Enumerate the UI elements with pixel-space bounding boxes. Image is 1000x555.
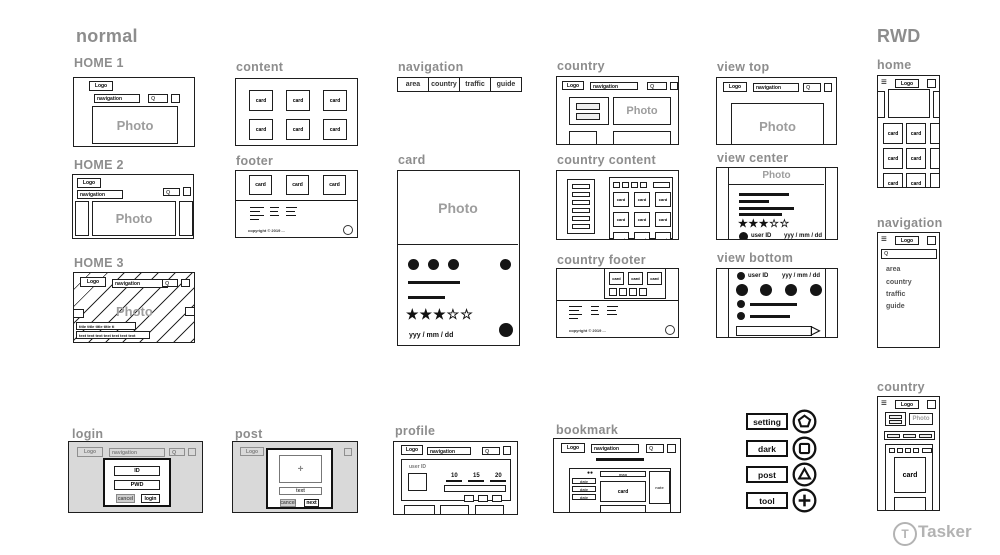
navigation-bar[interactable]: navigation xyxy=(427,447,471,455)
avatar-dot xyxy=(408,259,419,270)
footer-link-line xyxy=(286,207,297,208)
id-field[interactable]: ID xyxy=(114,466,160,476)
rating-stars[interactable]: ★★★☆☆ xyxy=(406,307,474,321)
logo-box: Logo xyxy=(77,178,101,188)
label-home2: HOME 2 xyxy=(74,158,124,172)
date-box[interactable]: date xyxy=(572,486,596,492)
logo-box: Logo xyxy=(401,445,423,455)
footer-link-line xyxy=(250,219,259,220)
list-row xyxy=(889,415,902,419)
title-rwd: RWD xyxy=(877,26,921,47)
action-dot[interactable] xyxy=(500,259,511,270)
post-modal: + text cancel next xyxy=(266,448,333,509)
related-panel: card card card xyxy=(604,268,666,299)
date-box[interactable]: date xyxy=(572,478,596,484)
label-bookmark: bookmark xyxy=(556,423,618,437)
date-box[interactable]: date xyxy=(572,494,596,500)
nav-item-country[interactable]: country xyxy=(429,78,460,91)
comment-input[interactable] xyxy=(736,326,812,336)
footer-link-line xyxy=(569,310,579,311)
label-view-center: view center xyxy=(717,151,788,165)
pager-box[interactable] xyxy=(629,288,637,296)
search-input[interactable]: Q xyxy=(482,447,500,455)
search-button[interactable] xyxy=(927,236,936,245)
card-partial[interactable] xyxy=(930,123,940,144)
left-sidebar xyxy=(75,201,89,236)
footer-link-line xyxy=(270,211,278,212)
label-view-top: view top xyxy=(717,60,769,74)
avatar-dot xyxy=(737,312,745,320)
segment[interactable] xyxy=(887,434,900,438)
nav-item-area[interactable]: area xyxy=(398,78,429,91)
reaction-dot[interactable] xyxy=(785,284,797,296)
photo-placeholder: Photo xyxy=(92,201,176,236)
search-input[interactable]: Q xyxy=(148,94,168,103)
search-button[interactable] xyxy=(181,279,190,287)
card[interactable]: card xyxy=(628,272,643,285)
search-icon: Q xyxy=(165,281,169,287)
wireframe-login: Logo navigation Q ID PWD cancel login xyxy=(68,441,203,513)
content-box xyxy=(613,131,671,145)
content-box xyxy=(475,505,504,515)
photo-placeholder xyxy=(888,89,930,118)
navigation-bar[interactable]: navigation xyxy=(753,83,799,92)
prev-slide-box[interactable] xyxy=(877,91,885,118)
search-button xyxy=(344,448,352,456)
card[interactable]: card xyxy=(613,212,629,227)
logo-box: Logo xyxy=(895,236,919,245)
top-button-circle[interactable] xyxy=(665,325,675,335)
filter-box[interactable] xyxy=(631,182,638,188)
tab-box[interactable] xyxy=(464,495,474,502)
profile-panel: user ID 10 15 20 xyxy=(401,459,511,501)
rating-stars[interactable]: ★★★☆☆ xyxy=(738,219,790,230)
label-navigation: navigation xyxy=(398,60,464,74)
card[interactable]: card xyxy=(323,119,347,140)
filter-box[interactable] xyxy=(913,448,919,453)
navigation-bar[interactable]: navigation xyxy=(112,279,168,288)
card[interactable]: card xyxy=(883,123,903,144)
photo-placeholder: Photo xyxy=(398,171,518,245)
text-line-box: text text text text text text text xyxy=(76,331,150,339)
label-rwd-home: home xyxy=(877,58,912,72)
search-button[interactable] xyxy=(183,187,191,196)
navigation-bar[interactable]: navigation xyxy=(591,444,639,453)
avatar-dot xyxy=(737,300,745,308)
footer-link-line xyxy=(250,211,260,212)
footer-link-line xyxy=(569,314,582,315)
list-row[interactable] xyxy=(572,208,590,213)
card[interactable]: card xyxy=(634,212,650,227)
card[interactable]: card xyxy=(894,457,926,493)
search-button[interactable] xyxy=(667,444,676,453)
wireframe-view-top: Logo navigation Q Photo xyxy=(716,77,837,145)
wireframe-rwd-home: ≡ Logo card card card card card card xyxy=(877,75,940,188)
text-line xyxy=(739,200,769,203)
list-row xyxy=(889,420,902,424)
logo-box: Logo xyxy=(89,81,113,91)
bookmark-panel: ●● date date date map card note xyxy=(569,468,671,513)
search-icon: Q xyxy=(806,85,810,91)
content-panel: card xyxy=(885,444,933,511)
segment-bar[interactable] xyxy=(884,431,935,440)
card[interactable]: card xyxy=(906,173,926,188)
label-country: country xyxy=(557,59,605,73)
text-line xyxy=(739,193,789,196)
search-button[interactable] xyxy=(927,400,936,409)
content-box xyxy=(440,505,469,515)
search-icon: Q xyxy=(650,84,654,90)
card[interactable]: card xyxy=(323,90,347,111)
card[interactable]: card xyxy=(249,119,273,140)
setting-button[interactable]: setting xyxy=(746,413,788,430)
filter-box[interactable] xyxy=(889,448,895,453)
card[interactable]: card xyxy=(286,90,310,111)
navigation-bar[interactable]: navigation xyxy=(77,190,123,199)
search-icon: Q xyxy=(151,96,155,102)
upload-photo-box[interactable]: + xyxy=(279,455,322,483)
wireframe-profile: Logo navigation Q user ID 10 15 20 xyxy=(393,441,518,515)
pager-box[interactable] xyxy=(639,288,647,296)
wireframe-country-content: card card card card card card card card … xyxy=(556,170,679,240)
reaction-dot[interactable] xyxy=(760,284,772,296)
list-row[interactable] xyxy=(572,200,590,205)
card[interactable]: card xyxy=(883,173,903,188)
card[interactable]: card xyxy=(655,212,671,227)
text-line xyxy=(739,207,794,210)
stat-value: 10 xyxy=(451,473,458,479)
stat-underline xyxy=(468,480,484,482)
content-box xyxy=(569,131,597,145)
search-icon: Q xyxy=(172,450,176,456)
wireframe-content: card card card card card card xyxy=(235,78,358,146)
search-button[interactable] xyxy=(824,83,832,92)
map-bar[interactable]: map xyxy=(600,471,646,477)
list-row[interactable] xyxy=(572,192,590,197)
label-content: content xyxy=(236,60,283,74)
label-rwd-navigation: navigation xyxy=(877,216,943,230)
date-text: yyy / mm / dd xyxy=(784,233,822,239)
photo-placeholder: Photo xyxy=(731,103,824,145)
list-box xyxy=(885,412,906,426)
label-home1: HOME 1 xyxy=(74,56,124,70)
prev-slide-box[interactable] xyxy=(73,309,84,318)
label-country-footer: country footer xyxy=(557,253,646,267)
hamburger-icon[interactable]: ≡ xyxy=(881,235,887,245)
segment[interactable] xyxy=(919,434,932,438)
menu-item-traffic[interactable]: traffic xyxy=(886,291,905,298)
search-input[interactable]: Q xyxy=(881,249,937,259)
note-box[interactable]: note xyxy=(649,471,670,504)
logo-box: Logo xyxy=(80,277,106,287)
list-row[interactable] xyxy=(572,184,590,189)
copyright-text: copyright © 2019 ... xyxy=(569,329,606,333)
card[interactable]: card xyxy=(286,119,310,140)
dark-button[interactable]: dark xyxy=(746,440,788,457)
menu-item-country[interactable]: country xyxy=(886,279,912,286)
label-rwd-country: country xyxy=(877,380,925,394)
plus-icon[interactable] xyxy=(792,488,817,513)
user-id-text: user ID xyxy=(409,465,426,470)
wireframe-home3: Logo navigation Q Photo title title titl… xyxy=(73,272,195,343)
user-id-text: user ID xyxy=(748,273,768,279)
card[interactable]: card xyxy=(249,90,273,111)
comment-line xyxy=(750,303,797,306)
card[interactable]: card xyxy=(323,175,346,195)
next-slide-box[interactable] xyxy=(933,91,940,118)
footer-link-line xyxy=(286,211,295,212)
card[interactable]: card xyxy=(906,123,926,144)
card-partial[interactable] xyxy=(930,173,940,188)
detail-panel: Photo ★★★☆☆ user ID yyy / mm / dd xyxy=(728,167,826,240)
navigation-bar[interactable]: navigation xyxy=(94,94,140,103)
date-text: yyy / mm / dd xyxy=(782,273,820,279)
card-partial[interactable] xyxy=(600,505,646,513)
search-input[interactable]: Q xyxy=(162,279,178,287)
tasker-logo-icon: T xyxy=(893,522,917,546)
search-icon: Q xyxy=(649,446,653,452)
pager-box[interactable] xyxy=(619,288,627,296)
copyright-text: copyright © 2019 ... xyxy=(248,229,285,233)
top-button-circle[interactable] xyxy=(343,225,353,235)
post-button[interactable]: post xyxy=(746,466,788,483)
navigation-bar[interactable]: navigation xyxy=(590,82,638,90)
search-icon: Q xyxy=(485,449,489,455)
card[interactable]: card xyxy=(613,232,629,240)
label-profile: profile xyxy=(395,424,435,438)
stat-value: 20 xyxy=(495,473,502,479)
logo-box: Logo xyxy=(77,447,103,457)
avatar-dot xyxy=(428,259,439,270)
list-row xyxy=(576,113,600,120)
filter-box[interactable] xyxy=(622,182,629,188)
comment-line xyxy=(750,315,790,318)
sidebar-list xyxy=(567,179,595,234)
user-id-text: user ID xyxy=(751,233,771,239)
triangle-icon[interactable] xyxy=(792,462,817,487)
wireframe-country: Logo navigation Q Photo xyxy=(556,76,679,145)
filter-box[interactable] xyxy=(613,182,620,188)
title-normal: normal xyxy=(76,26,138,47)
photo-placeholder: Photo xyxy=(92,106,178,144)
list-row xyxy=(576,103,600,110)
wireframe-navigation: area country traffic guide xyxy=(397,77,522,92)
menu-item-area[interactable]: area xyxy=(886,266,900,273)
search-input: Q xyxy=(169,448,185,456)
hamburger-icon[interactable]: ≡ xyxy=(881,78,887,88)
pager-box[interactable] xyxy=(609,288,617,296)
card[interactable]: card xyxy=(906,148,926,169)
reaction-dot[interactable] xyxy=(736,284,748,296)
nav-item-traffic[interactable]: traffic xyxy=(460,78,491,91)
title-line xyxy=(596,458,644,461)
avatar-dot xyxy=(739,232,748,240)
footer-link-line xyxy=(591,310,598,311)
search-input[interactable]: Q xyxy=(647,82,667,90)
wireframe-country-footer: card card card copyright © 2019 ... xyxy=(556,268,679,338)
send-arrow-icon[interactable]: ▷ xyxy=(811,324,820,336)
title-line-box: title title title title ti xyxy=(76,322,136,330)
logo-box: Logo xyxy=(240,447,264,456)
tab-box[interactable] xyxy=(492,495,502,502)
footer-link-line xyxy=(607,310,616,311)
label-country-content: country content xyxy=(557,153,656,167)
footer-link-line xyxy=(569,306,582,307)
login-button[interactable]: login xyxy=(141,494,160,503)
pwd-field[interactable]: PWD xyxy=(114,480,160,490)
pentagon-icon[interactable] xyxy=(792,409,817,434)
list-row[interactable] xyxy=(572,224,590,229)
wireframe-rwd-country: ≡ Logo Photo card xyxy=(877,396,940,511)
search-icon: Q xyxy=(166,190,170,196)
tool-button[interactable]: tool xyxy=(746,492,788,509)
avatar-dot xyxy=(737,272,745,280)
tasker-watermark: Tasker xyxy=(918,522,972,542)
text-line xyxy=(739,213,782,216)
card[interactable]: card xyxy=(647,272,662,285)
navigation-bar: navigation xyxy=(109,448,165,457)
next-button[interactable]: next xyxy=(304,499,319,507)
photo-placeholder: Photo xyxy=(116,305,153,318)
card[interactable]: card xyxy=(609,272,624,285)
card[interactable]: card xyxy=(249,175,272,195)
date-text: yyy / mm / dd xyxy=(409,332,453,339)
search-button[interactable] xyxy=(927,79,936,88)
next-slide-box[interactable] xyxy=(185,307,195,316)
stat-value: 15 xyxy=(473,473,480,479)
menu-item-guide[interactable]: guide xyxy=(886,303,905,310)
filter-box[interactable] xyxy=(897,448,903,453)
wireframe-bookmark: Logo navigation Q ●● date date date map … xyxy=(553,438,681,513)
wireframe-rwd-navigation: ≡ Logo Q area country traffic guide xyxy=(877,232,940,348)
card[interactable]: card xyxy=(613,192,629,207)
search-input[interactable]: Q xyxy=(163,188,180,196)
filter-box[interactable] xyxy=(640,182,647,188)
search-button[interactable] xyxy=(670,82,678,90)
filter-wide-box[interactable] xyxy=(653,182,670,188)
label-card: card xyxy=(398,153,426,167)
footer-link-line xyxy=(607,314,617,315)
card[interactable]: card xyxy=(634,192,650,207)
footer-link-line xyxy=(591,306,599,307)
avatar xyxy=(408,473,427,491)
footer-link-line xyxy=(591,314,599,315)
label-footer: footer xyxy=(236,154,273,168)
search-input[interactable]: Q xyxy=(803,83,821,92)
search-input[interactable]: Q xyxy=(646,444,664,453)
comments-panel: user ID yyy / mm / dd ▷ xyxy=(728,268,826,338)
search-button[interactable] xyxy=(503,446,511,455)
cancel-button[interactable]: cancel xyxy=(116,494,135,503)
divider xyxy=(557,300,679,301)
search-button[interactable] xyxy=(171,94,180,103)
card[interactable]: card xyxy=(600,481,646,502)
avatar-dot xyxy=(448,259,459,270)
photo-placeholder: Photo xyxy=(613,97,671,125)
footer-link-line xyxy=(607,306,618,307)
content-panel: card card card card card card card card … xyxy=(609,177,673,239)
label-view-bottom: view bottom xyxy=(717,251,793,265)
card-partial[interactable] xyxy=(894,497,926,511)
subtitle-line xyxy=(408,296,445,299)
hamburger-icon[interactable]: ≡ xyxy=(881,399,887,409)
reaction-dot[interactable] xyxy=(810,284,822,296)
footer-link-line xyxy=(286,215,296,216)
footer-link-line xyxy=(270,215,279,216)
dots-indicator: ●● xyxy=(587,471,593,476)
right-sidebar xyxy=(179,201,193,236)
photo-placeholder: Photo xyxy=(909,413,933,425)
footer-link-line xyxy=(250,207,264,208)
label-home3: HOME 3 xyxy=(74,256,124,270)
tab-box[interactable] xyxy=(478,495,488,502)
label-login: login xyxy=(72,427,103,441)
filter-wide-box[interactable] xyxy=(922,448,932,453)
stat-underline xyxy=(446,480,462,482)
wireframe-post: Logo + text cancel next xyxy=(232,441,358,513)
list-box xyxy=(569,97,609,125)
logo-box: Logo xyxy=(895,79,919,88)
wireframe-view-bottom: user ID yyy / mm / dd ▷ xyxy=(716,268,838,338)
logo-box: Logo xyxy=(562,81,584,90)
footer-link-line xyxy=(250,215,264,216)
text-field[interactable]: text xyxy=(279,487,322,495)
login-modal: ID PWD cancel login xyxy=(103,458,171,507)
wireframe-home2: Logo navigation Q Photo xyxy=(72,174,194,239)
filter-box[interactable] xyxy=(905,448,911,453)
logo-box: Logo xyxy=(723,82,747,92)
wireframe-sheet: normal RWD HOME 1 Logo navigation Q Phot… xyxy=(0,0,1000,555)
nav-item-guide[interactable]: guide xyxy=(491,78,521,91)
title-line xyxy=(408,281,460,284)
footer-link-line xyxy=(569,318,578,319)
cancel-button[interactable]: cancel xyxy=(280,499,296,507)
card[interactable]: card xyxy=(634,232,650,240)
divider xyxy=(236,200,358,201)
action-dot[interactable] xyxy=(499,323,513,337)
logo-box: Logo xyxy=(561,443,585,453)
list-row[interactable] xyxy=(572,216,590,221)
card[interactable]: card xyxy=(883,148,903,169)
wireframe-card: Photo ★★★☆☆ yyy / mm / dd xyxy=(397,170,520,346)
search-icon: Q xyxy=(884,251,888,257)
segment[interactable] xyxy=(903,434,916,438)
wireframe-footer: card card card copyright © 2019 ... xyxy=(235,170,358,238)
card[interactable]: card xyxy=(286,175,309,195)
wireframe-view-center: Photo ★★★☆☆ user ID yyy / mm / dd xyxy=(716,167,838,240)
card[interactable]: card xyxy=(655,232,671,240)
label-post: post xyxy=(235,427,263,441)
bio-bar xyxy=(444,485,506,492)
footer-link-line xyxy=(270,207,279,208)
logo-box: Logo xyxy=(895,400,919,409)
card-partial[interactable] xyxy=(930,148,940,169)
content-box xyxy=(404,505,435,515)
search-button xyxy=(188,448,196,456)
photo-placeholder: Photo xyxy=(729,167,824,185)
card[interactable]: card xyxy=(655,192,671,207)
square-icon[interactable] xyxy=(792,436,817,461)
stat-underline xyxy=(490,480,506,482)
wireframe-home1: Logo navigation Q Photo xyxy=(73,77,195,147)
